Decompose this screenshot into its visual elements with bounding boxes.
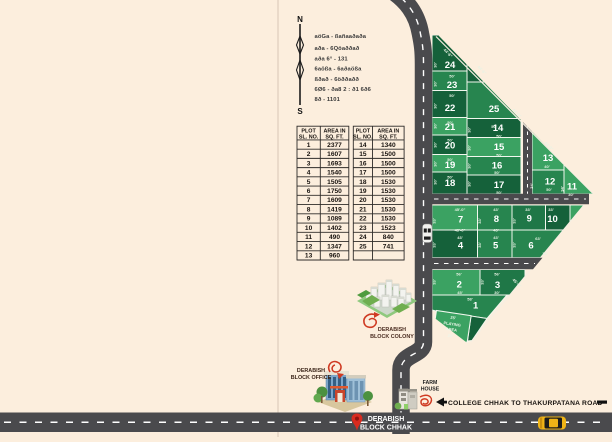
- svg-text:24: 24: [445, 60, 456, 71]
- svg-text:45'-0": 45'-0": [455, 207, 466, 212]
- svg-text:1530: 1530: [381, 197, 396, 204]
- svg-text:840: 840: [383, 234, 394, 241]
- svg-text:S: S: [297, 107, 303, 116]
- svg-text:8ð - 1101: 8ð - 1101: [315, 96, 341, 103]
- svg-text:33': 33': [512, 242, 517, 247]
- svg-text:6aößa - 6aðaößa: 6aößa - 6aðaößa: [315, 66, 363, 73]
- svg-text:17: 17: [359, 170, 367, 177]
- svg-text:25: 25: [489, 104, 500, 115]
- svg-text:SL. NO.: SL. NO.: [353, 134, 373, 140]
- svg-text:9: 9: [307, 216, 311, 223]
- svg-text:1089: 1089: [327, 216, 342, 223]
- svg-text:14: 14: [359, 142, 367, 149]
- svg-text:25: 25: [359, 243, 367, 250]
- svg-text:50': 50': [449, 93, 454, 98]
- svg-text:SL. NO.: SL. NO.: [299, 134, 319, 140]
- svg-text:3: 3: [307, 160, 311, 167]
- svg-text:7: 7: [307, 197, 311, 204]
- svg-text:SQ. FT.: SQ. FT.: [379, 134, 398, 140]
- svg-text:43': 43': [493, 228, 498, 233]
- svg-text:1530: 1530: [381, 206, 396, 213]
- svg-text:45': 45': [457, 290, 462, 295]
- svg-text:24: 24: [359, 234, 367, 241]
- svg-text:1693: 1693: [327, 160, 342, 167]
- svg-text:33': 33': [525, 207, 530, 212]
- svg-text:1609: 1609: [327, 197, 342, 204]
- svg-text:741: 741: [383, 243, 394, 250]
- svg-text:1500: 1500: [381, 151, 396, 158]
- svg-text:1340: 1340: [381, 142, 396, 149]
- svg-text:21: 21: [359, 206, 367, 213]
- svg-text:5: 5: [307, 179, 311, 186]
- svg-text:1607: 1607: [327, 151, 342, 158]
- svg-text:13: 13: [543, 153, 554, 164]
- svg-text:50': 50': [546, 187, 551, 192]
- svg-text:43': 43': [457, 235, 462, 240]
- svg-text:56': 56': [494, 272, 499, 277]
- svg-text:6: 6: [528, 241, 533, 252]
- svg-text:7: 7: [458, 215, 463, 226]
- svg-text:30': 30': [467, 181, 472, 186]
- svg-text:1540: 1540: [327, 170, 342, 177]
- svg-text:50': 50': [491, 124, 496, 129]
- svg-text:DERABISH: DERABISH: [297, 368, 325, 374]
- svg-text:50': 50': [447, 138, 452, 143]
- svg-text:33': 33': [477, 242, 482, 247]
- svg-text:23: 23: [359, 225, 367, 232]
- svg-text:50': 50': [447, 175, 452, 180]
- svg-text:50': 50': [496, 190, 501, 195]
- svg-text:1347: 1347: [327, 243, 342, 250]
- svg-text:33': 33': [548, 207, 553, 212]
- svg-text:30': 30': [433, 161, 438, 166]
- svg-text:20: 20: [359, 197, 367, 204]
- svg-text:11: 11: [305, 234, 312, 241]
- svg-text:10: 10: [547, 214, 558, 225]
- svg-text:aða - 6Qöaððað: aða - 6Qöaððað: [315, 45, 360, 52]
- svg-text:25': 25': [447, 333, 453, 339]
- svg-text:15: 15: [494, 142, 505, 153]
- svg-text:33': 33': [432, 279, 437, 284]
- svg-text:6Ø6 - ða8 2 : ð1 6ð6: 6Ø6 - ða8 2 : ð1 6ð6: [315, 86, 372, 93]
- svg-text:HOUSE: HOUSE: [421, 387, 440, 393]
- svg-text:30': 30': [433, 142, 438, 147]
- svg-text:BLOCK OFFICE: BLOCK OFFICE: [291, 375, 332, 381]
- svg-text:2377: 2377: [327, 142, 342, 149]
- svg-text:6: 6: [307, 188, 311, 195]
- svg-text:1500: 1500: [381, 160, 396, 167]
- svg-text:50': 50': [447, 120, 452, 125]
- svg-text:DERABISH: DERABISH: [378, 327, 406, 333]
- svg-text:1523: 1523: [381, 225, 396, 232]
- svg-text:1: 1: [307, 142, 311, 149]
- svg-text:10: 10: [305, 225, 313, 232]
- svg-text:13: 13: [305, 253, 313, 260]
- svg-text:43': 43': [493, 235, 498, 240]
- svg-text:8: 8: [307, 206, 311, 213]
- svg-text:1505: 1505: [327, 179, 342, 186]
- svg-text:SQ. FT.: SQ. FT.: [325, 134, 344, 140]
- svg-text:1530: 1530: [381, 216, 396, 223]
- svg-text:33': 33': [432, 242, 437, 247]
- svg-text:1402: 1402: [327, 225, 342, 232]
- svg-text:960: 960: [329, 253, 340, 260]
- svg-text:ßðað - 6öððaðð: ßðað - 6öððaðð: [315, 76, 360, 83]
- svg-text:18: 18: [445, 178, 456, 189]
- svg-text:aða 6° - 131: aða 6° - 131: [315, 56, 349, 63]
- svg-text:40': 40': [544, 164, 549, 169]
- svg-text:22: 22: [359, 216, 367, 223]
- svg-text:63': 63': [535, 236, 540, 241]
- svg-text:33': 33': [480, 279, 485, 284]
- svg-text:34': 34': [560, 186, 565, 191]
- svg-text:1750: 1750: [327, 188, 342, 195]
- svg-text:23: 23: [447, 80, 458, 91]
- svg-text:30': 30': [433, 179, 438, 184]
- svg-text:56': 56': [456, 272, 461, 277]
- svg-text:33': 33': [432, 218, 437, 223]
- svg-text:34': 34': [529, 183, 534, 188]
- svg-text:30': 30': [433, 103, 438, 108]
- svg-text:5: 5: [493, 241, 499, 252]
- svg-text:22: 22: [445, 103, 456, 114]
- svg-text:BLOCK CHHAK: BLOCK CHHAK: [360, 425, 412, 432]
- svg-text:13': 13': [542, 251, 547, 256]
- svg-text:25': 25': [450, 315, 456, 321]
- svg-text:30': 30': [494, 290, 499, 295]
- svg-text:50': 50': [496, 153, 501, 158]
- svg-text:FARM: FARM: [423, 380, 438, 386]
- svg-text:4: 4: [458, 241, 464, 252]
- svg-text:4: 4: [307, 170, 311, 177]
- svg-text:COLLEGE CHHAK TO THAKURPATANA: COLLEGE CHHAK TO THAKURPATANA ROAD: [448, 400, 603, 407]
- svg-text:2: 2: [457, 280, 462, 291]
- svg-text:9: 9: [527, 214, 532, 225]
- svg-text:50': 50': [496, 134, 501, 139]
- svg-text:30': 30': [433, 123, 438, 128]
- svg-text:30': 30': [568, 192, 573, 197]
- svg-text:DERABISH: DERABISH: [368, 416, 405, 423]
- svg-text:48'-6": 48'-6": [455, 228, 466, 233]
- svg-text:1: 1: [473, 301, 479, 312]
- svg-text:aöGa - ßañaaðaða: aöGa - ßañaaðaða: [315, 33, 367, 40]
- svg-text:12: 12: [545, 177, 556, 188]
- svg-text:1419: 1419: [327, 206, 342, 213]
- svg-text:1530: 1530: [381, 188, 396, 195]
- svg-text:58': 58': [467, 297, 472, 302]
- svg-text:43': 43': [493, 207, 498, 212]
- svg-text:16: 16: [359, 160, 367, 167]
- svg-text:30': 30': [467, 127, 472, 132]
- svg-text:30': 30': [467, 163, 472, 168]
- svg-text:1530: 1530: [381, 179, 396, 186]
- svg-text:8: 8: [494, 214, 499, 225]
- svg-text:30': 30': [433, 81, 438, 86]
- svg-text:30': 30': [433, 62, 438, 67]
- svg-text:N: N: [297, 15, 303, 24]
- svg-text:33': 33': [477, 218, 482, 223]
- svg-text:30': 30': [467, 145, 472, 150]
- svg-text:490: 490: [329, 234, 340, 241]
- svg-text:50': 50': [447, 157, 452, 162]
- svg-text:BLOCK COLONY: BLOCK COLONY: [370, 334, 414, 340]
- svg-text:12: 12: [305, 243, 313, 250]
- svg-text:15: 15: [359, 151, 367, 158]
- svg-text:18: 18: [359, 179, 367, 186]
- svg-text:33': 33': [512, 218, 517, 223]
- svg-text:11: 11: [567, 182, 578, 193]
- svg-text:50': 50': [494, 170, 499, 175]
- svg-text:19: 19: [359, 188, 367, 195]
- svg-text:1500: 1500: [381, 170, 396, 177]
- svg-text:2: 2: [307, 151, 311, 158]
- svg-text:50': 50': [449, 74, 454, 79]
